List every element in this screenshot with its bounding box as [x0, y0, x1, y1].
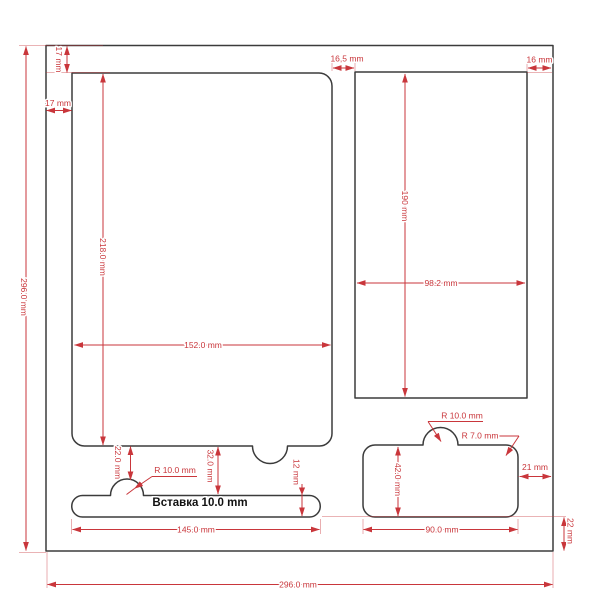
- svg-text:17 mm: 17 mm: [54, 47, 64, 73]
- svg-text:98.2 mm: 98.2 mm: [424, 278, 457, 288]
- svg-text:16,5 mm: 16,5 mm: [330, 54, 363, 64]
- dim-strip-width: 145.0 mm: [73, 525, 320, 535]
- dim-strip-gap: 32.0 mm: [206, 447, 219, 494]
- dim-strip-height: 12 mm: [292, 459, 306, 516]
- dim-pocket-gap: 16,5 mm: [330, 54, 363, 69]
- svg-text:12 mm: 12 mm: [292, 459, 302, 485]
- svg-text:296.0 mm: 296.0 mm: [19, 278, 29, 316]
- dim-small-pocket-right-margin: 21 mm: [520, 462, 551, 477]
- leader-small-pocket-corner-radius: R 7.0 mm: [462, 431, 519, 456]
- svg-text:Вставка 10.0 mm: Вставка 10.0 mm: [152, 497, 247, 509]
- technical-drawing-canvas: 296.0 mm 296.0 mm 17 mm 17 mm 16,5 mm 16…: [0, 0, 600, 600]
- insert-strip-label: Вставка 10.0 mm: [152, 497, 247, 509]
- dim-left-pocket-width: 152.0 mm: [75, 340, 331, 350]
- svg-text:296.0 mm: 296.0 mm: [279, 580, 317, 590]
- dim-right-pocket-width: 98.2 mm: [357, 278, 525, 288]
- dim-top-margin: 17 mm: [54, 47, 67, 73]
- svg-text:145.0 mm: 145.0 mm: [177, 525, 215, 535]
- dim-outer-height: 296.0 mm: [19, 47, 29, 551]
- dim-bottom-margin: 22 mm: [564, 518, 576, 551]
- extension-lines: [19, 46, 566, 589]
- svg-text:90.0 mm: 90.0 mm: [425, 525, 458, 535]
- svg-text:R 7.0 mm: R 7.0 mm: [462, 431, 499, 441]
- dim-right-pocket-height: 190 mm: [400, 74, 410, 397]
- svg-text:218.0 mm: 218.0 mm: [98, 238, 108, 276]
- dim-left-pocket-height: 218.0 mm: [98, 74, 108, 445]
- svg-text:190 mm: 190 mm: [400, 191, 410, 222]
- svg-text:32.0 mm: 32.0 mm: [206, 449, 216, 482]
- dim-left-margin: 17 mm: [45, 98, 71, 111]
- svg-text:22 mm: 22 mm: [566, 518, 576, 544]
- left-pocket-outline: [72, 73, 332, 464]
- dim-strip-top-offset: 22.0 mm: [113, 446, 131, 480]
- dim-outer-width: 296.0 mm: [48, 580, 553, 590]
- right-pocket-outline: [355, 72, 527, 398]
- svg-text:22.0 mm: 22.0 mm: [113, 446, 123, 479]
- svg-text:R 10.0 mm: R 10.0 mm: [154, 465, 196, 475]
- svg-text:R 10.0 mm: R 10.0 mm: [441, 411, 483, 421]
- svg-text:21 mm: 21 mm: [522, 462, 548, 472]
- svg-text:152.0 mm: 152.0 mm: [184, 340, 222, 350]
- svg-text:17 mm: 17 mm: [45, 98, 71, 108]
- dim-right-margin: 16 mm: [527, 55, 553, 69]
- svg-text:42.0 mm: 42.0 mm: [393, 463, 403, 496]
- dim-small-pocket-width: 90.0 mm: [364, 525, 518, 535]
- leader-strip-notch-radius: R 10.0 mm: [127, 465, 198, 495]
- svg-text:16 mm: 16 mm: [527, 55, 553, 65]
- dim-small-pocket-height: 42.0 mm: [393, 447, 403, 516]
